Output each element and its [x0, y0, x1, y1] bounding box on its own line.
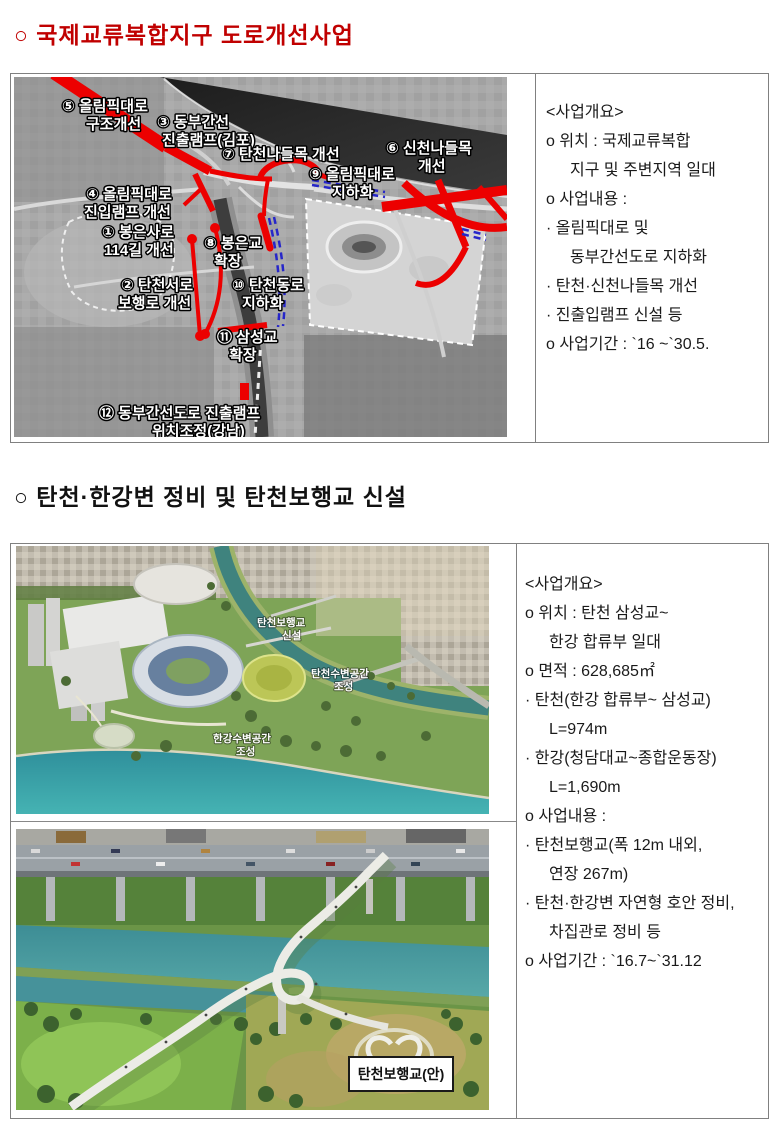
- bridge-caption: 탄천보행교(안): [358, 1066, 445, 1082]
- road-improvement-map-cell: ⑤ 올림픽대로 구조개선 ③ 동부간선 진출램프(김포) ⑦ 탄천나들목 개선 …: [11, 74, 536, 442]
- overview-line: · 탄천보행교(폭 12m 내외,: [525, 831, 766, 860]
- aerial-rendering-image: 탄천보행교 신설 탄천수변공간 조성 한강수변공간 조성: [16, 546, 489, 814]
- bridge-rendering-row: 탄천보행교(안): [11, 822, 516, 1110]
- map-label: ⑩ 탄천동로: [232, 276, 304, 294]
- map-label: 진입램프 개선: [84, 203, 171, 221]
- aerial-label: 조성: [236, 745, 255, 758]
- overview-line: 한강 합류부 일대: [525, 628, 766, 657]
- map-label: 114길 개선: [104, 241, 174, 259]
- section2-table: 탄천보행교 신설 탄천수변공간 조성 한강수변공간 조성: [10, 543, 769, 1119]
- map-label: 지하화: [332, 184, 374, 201]
- overview-line: o 사업기간 : `16 ~`30.5.: [546, 330, 764, 359]
- overview-line: · 올림픽대로 및: [546, 214, 764, 243]
- section2-overview: <사업개요> o 위치 : 탄천 삼성교~ 한강 합류부 일대 o 면적 : 6…: [517, 544, 768, 1118]
- map-label: 개선: [418, 157, 446, 175]
- overview-line: · 탄천·한강변 자연형 호안 정비,: [525, 889, 766, 918]
- report-page: ○ 국제교류복합지구 도로개선사업: [0, 0, 779, 1129]
- overview-line: L=1,690m: [525, 773, 766, 802]
- overview-line: o 위치 : 탄천 삼성교~: [525, 599, 766, 628]
- overview-line: o 사업내용 :: [525, 802, 766, 831]
- overview-line: L=974m: [525, 715, 766, 744]
- skyline-strip: [16, 829, 489, 845]
- overview-line: 차집관로 정비 등: [525, 918, 766, 947]
- map-label: ⑫ 동부간선도로 진출램프: [99, 404, 261, 422]
- section2-title: ○ 탄천·한강변 정비 및 탄천보행교 신설: [14, 478, 407, 512]
- aerial-label: 탄천수변공간: [311, 667, 369, 680]
- overview-line: · 탄천·신천나들목 개선: [546, 272, 764, 301]
- map-label: ⑪ 삼성교: [217, 328, 278, 346]
- overview-line: · 한강(청담대교~종합운동장): [525, 744, 766, 773]
- overview-heading: <사업개요>: [546, 98, 764, 127]
- overview-heading: <사업개요>: [525, 570, 766, 599]
- aerial-label: 한강수변공간: [213, 732, 271, 745]
- aerial-rendering-row: 탄천보행교 신설 탄천수변공간 조성 한강수변공간 조성: [11, 544, 516, 822]
- map-label: ③ 동부간선: [157, 114, 229, 131]
- map-label: ④ 올림픽대로: [86, 185, 172, 203]
- map-label: ⑥ 신천나들목: [386, 139, 472, 157]
- aerial-label: 조성: [334, 680, 353, 693]
- renderings-cell: 탄천보행교 신설 탄천수변공간 조성 한강수변공간 조성: [11, 544, 517, 1118]
- elevated-highway: [16, 845, 489, 925]
- map-label: 지하화: [242, 295, 284, 312]
- map-label: ⑦ 탄천나들목 개선: [222, 145, 340, 163]
- overview-line: · 탄천(한강 합류부~ 삼성교): [525, 686, 766, 715]
- overview-line: o 위치 : 국제교류복합: [546, 127, 764, 156]
- overview-line: o 사업내용 :: [546, 185, 764, 214]
- map-label: 구조개선: [86, 115, 141, 133]
- map-label: ① 봉은사로: [102, 224, 174, 241]
- section1-table: ⑤ 올림픽대로 구조개선 ③ 동부간선 진출램프(김포) ⑦ 탄천나들목 개선 …: [10, 73, 769, 443]
- overview-line: o 면적 : 628,685㎡: [525, 657, 766, 686]
- map-label: ② 탄천서로: [121, 276, 193, 294]
- overview-line: · 진출입램프 신설 등: [546, 301, 764, 330]
- map-label: 위치조정(강남): [152, 422, 245, 437]
- map-label: ⑤ 올림픽대로: [62, 97, 148, 115]
- overview-line: 지구 및 주변지역 일대: [546, 156, 764, 185]
- bridge-rendering-image: 탄천보행교(안): [16, 829, 489, 1110]
- map-label: ⑨ 올림픽대로: [309, 165, 395, 183]
- section1-overview: <사업개요> o 위치 : 국제교류복합 지구 및 주변지역 일대 o 사업내용…: [536, 74, 768, 442]
- aerial-label: 신설: [282, 629, 301, 642]
- road-improvement-map-image: ⑤ 올림픽대로 구조개선 ③ 동부간선 진출램프(김포) ⑦ 탄천나들목 개선 …: [14, 77, 507, 437]
- map-label: 확장: [214, 252, 242, 270]
- bridge-caption-box: 탄천보행교(안): [349, 1057, 453, 1091]
- aerial-label: 탄천보행교: [257, 616, 306, 629]
- map-label: 확장: [229, 346, 257, 364]
- section1-title: ○ 국제교류복합지구 도로개선사업: [14, 16, 354, 50]
- map-label: ⑧ 봉은교: [204, 235, 262, 252]
- overview-line: 동부간선도로 지하화: [546, 243, 764, 272]
- map-label: 보행로 개선: [118, 294, 191, 312]
- overview-line: 연장 267m): [525, 860, 766, 889]
- overview-line: o 사업기간 : `16.7~`31.12: [525, 947, 766, 976]
